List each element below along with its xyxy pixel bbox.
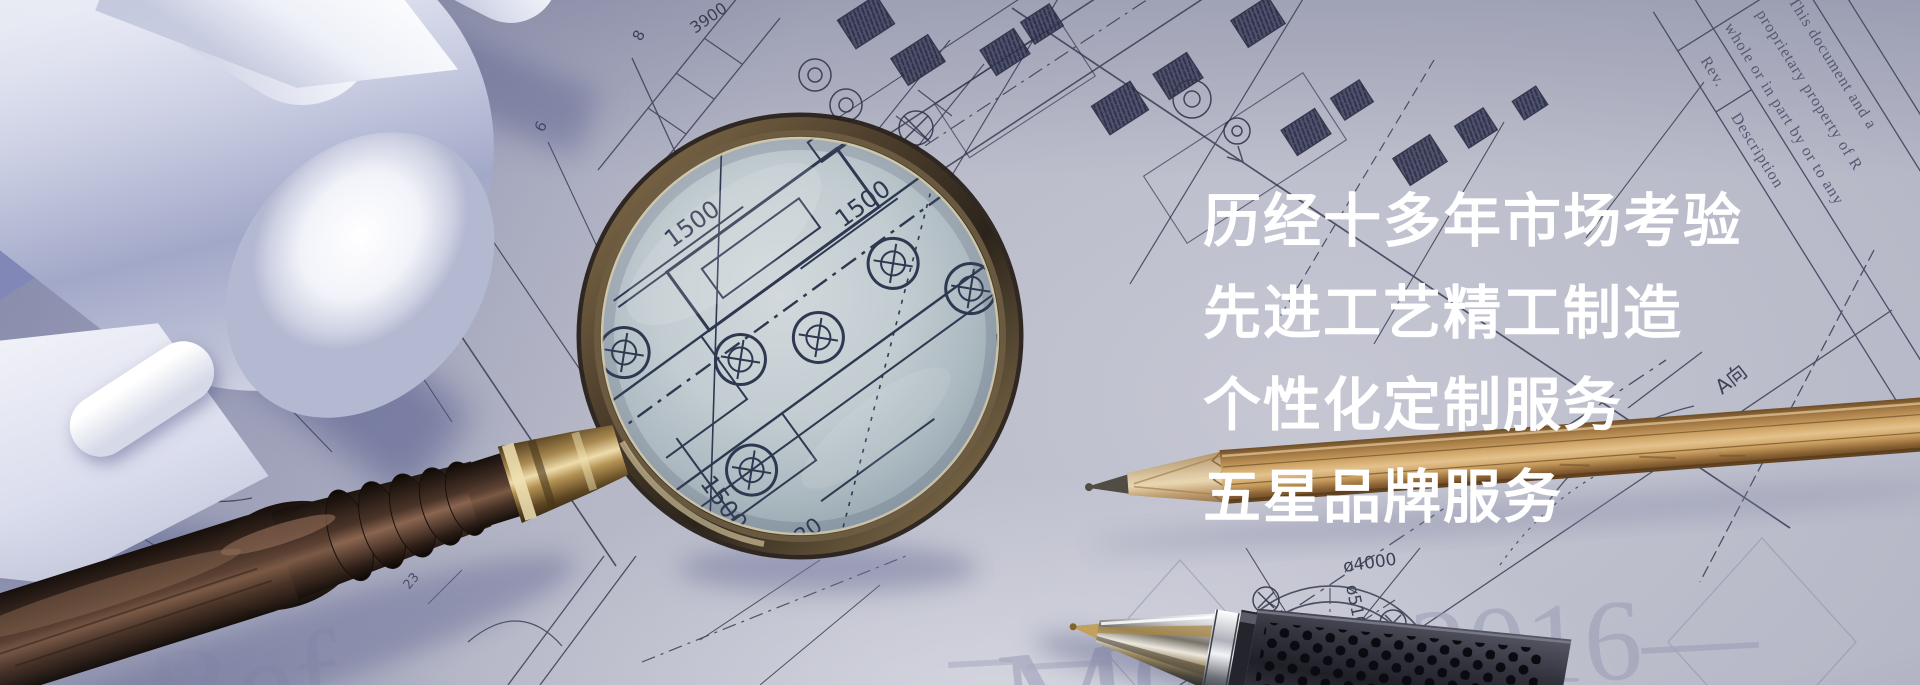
headline-line-4: 五星品牌服务 <box>1203 452 1743 544</box>
pencil-graphite-tip <box>1084 474 1130 497</box>
magnifier-lens: 1500 1500 1500 1120 4 <box>500 36 1101 637</box>
headline-line-3: 个性化定制服务 <box>1203 360 1743 452</box>
hero-headline: 历经十多年市场考验 先进工艺精工制造 个性化定制服务 五星品牌服务 <box>1203 176 1743 544</box>
headline-line-1: 历经十多年市场考验 <box>1203 176 1743 268</box>
headline-line-2: 先进工艺精工制造 <box>1203 268 1743 360</box>
hero-banner: B <box>0 0 1920 685</box>
